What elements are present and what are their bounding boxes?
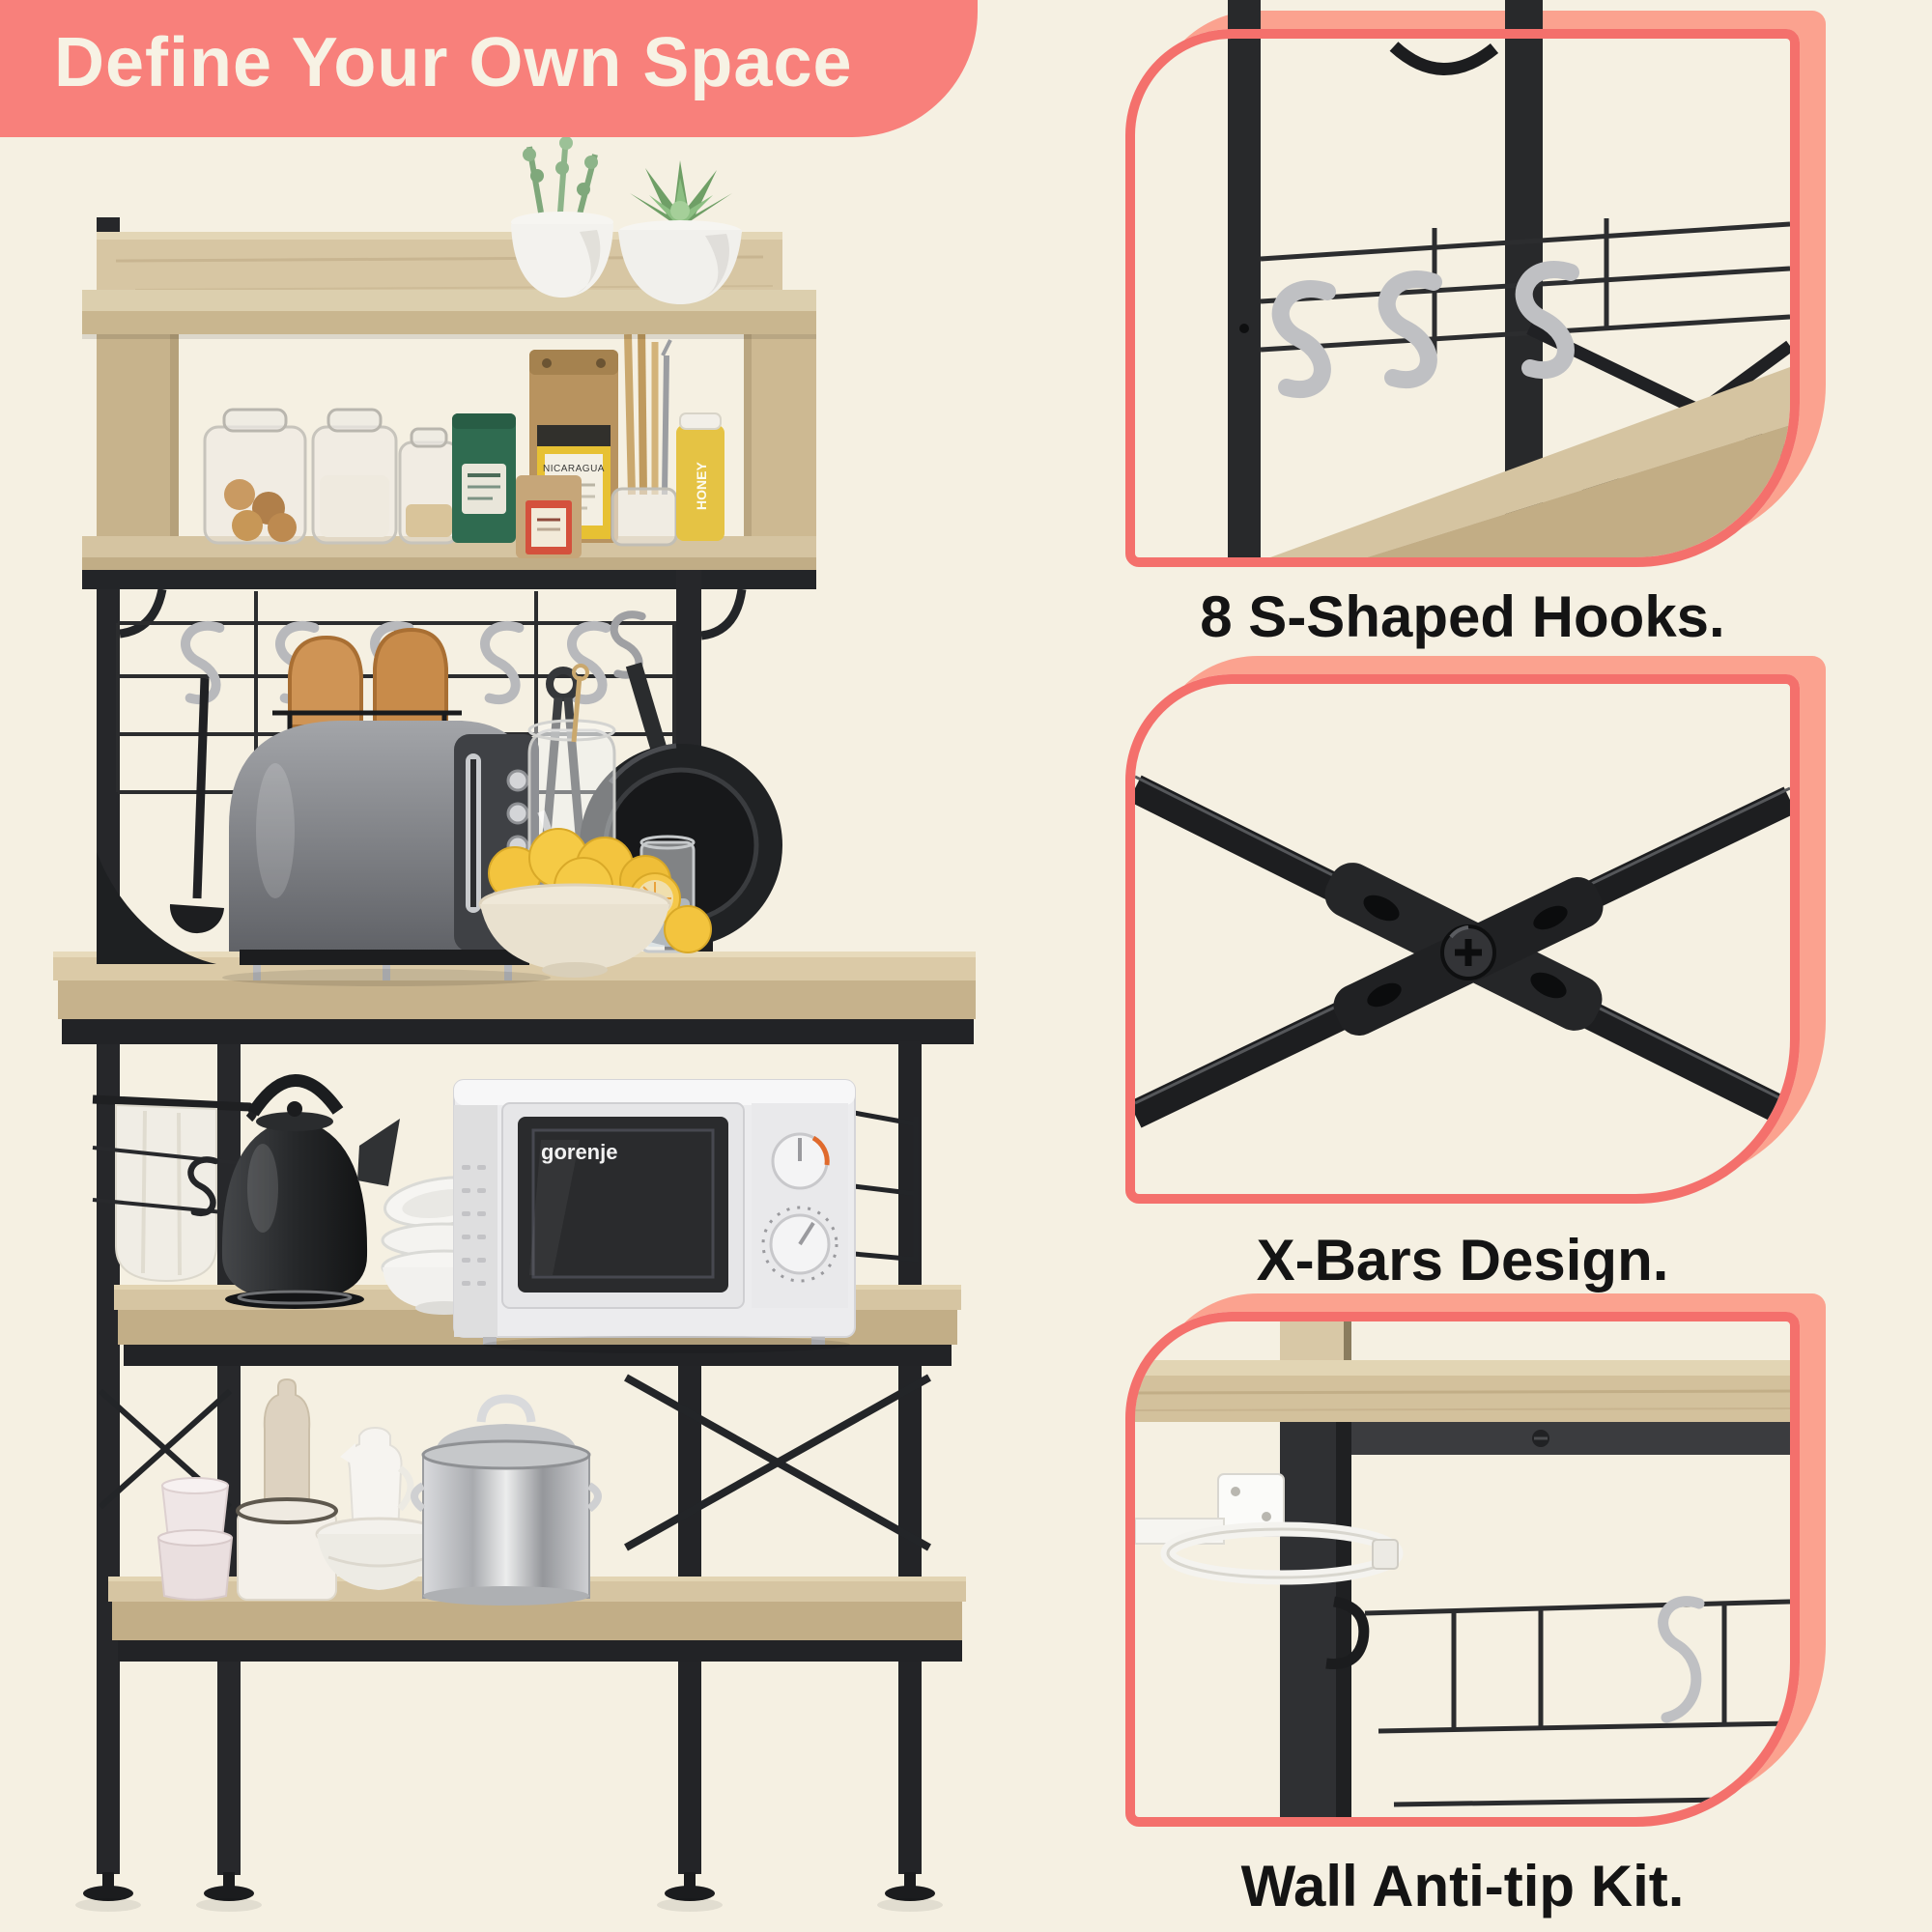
hutch-shelf-items: NICARAGUA [205, 325, 724, 558]
coffee-bag-label: NICARAGUA [543, 464, 605, 474]
crock-with-bottle [238, 1379, 336, 1600]
adjustable-feet [75, 1872, 943, 1912]
small-kraft-bag [516, 475, 582, 558]
hutch-right-panel [744, 333, 816, 546]
page-background: Define Your Own Space [0, 0, 1932, 1932]
product-photo: NICARAGUA [0, 135, 1121, 1932]
hutch-left-panel [97, 333, 179, 546]
succulent-plant-2 [618, 160, 742, 304]
green-coffee-bag [452, 413, 516, 543]
honey-jar-label: HONEY [694, 462, 709, 510]
banner: Define Your Own Space [0, 0, 978, 137]
panel-border [1125, 29, 1800, 567]
utensil-jar [612, 325, 676, 545]
ladle [197, 678, 205, 898]
panel-border [1125, 674, 1800, 1204]
honey-jar: HONEY [676, 413, 724, 541]
stacked-cups [158, 1478, 232, 1600]
microwave-brand: gorenje [541, 1140, 617, 1164]
microwave: gorenje [454, 1080, 855, 1353]
panel-border [1125, 1312, 1800, 1827]
callout-x-bars [1125, 674, 1800, 1204]
caption-s-hooks: 8 S-Shaped Hooks. [1125, 583, 1800, 650]
caption-anti-tip: Wall Anti-tip Kit. [1125, 1853, 1800, 1919]
succulent-plant-1 [511, 135, 613, 298]
main-tabletop [53, 952, 976, 1044]
towel [116, 1105, 216, 1281]
rice-jar [313, 410, 396, 543]
cookie-jar [205, 410, 305, 543]
banner-title: Define Your Own Space [54, 23, 853, 102]
stockpot [414, 1399, 598, 1605]
grain-jar [400, 429, 458, 543]
caption-x-bars: X-Bars Design. [1125, 1227, 1800, 1293]
callout-s-hooks [1125, 29, 1800, 567]
ceramic-bottle [265, 1379, 309, 1515]
callout-anti-tip [1125, 1312, 1800, 1827]
